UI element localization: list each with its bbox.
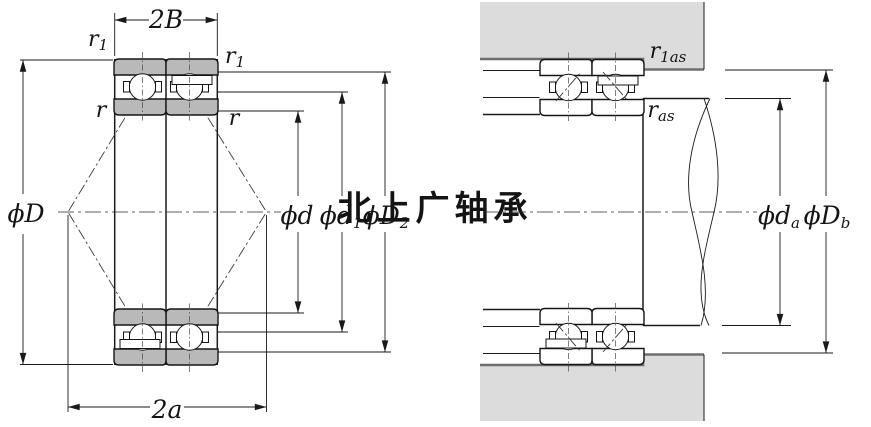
label-r-left: r [96,98,108,123]
label-r-right: r [229,106,241,131]
label-phi-da: ϕda [758,201,800,232]
label-phi-d: ϕd [280,201,313,230]
left-figure-bearing-section: 2B r1 r1 r r ϕD ϕd ϕd1 ϕD2 2a [7,5,409,424]
label-phi-Db: ϕDb [804,201,851,232]
label-2a: 2a [151,395,183,424]
bearing-drawing-canvas: 北上广轴承 [0,0,871,427]
label-phi-D: ϕD [7,199,44,228]
label-r1-left: r1 [88,27,108,54]
label-r1-right: r1 [225,44,245,71]
label-ras: ras [647,98,674,125]
mounted-bearing-top-section [540,53,644,123]
label-2B: 2B [148,5,183,34]
right-figure-mounting-section: r1as ras ϕda ϕDb [480,2,850,421]
mounted-bearing-bottom-section [540,302,644,372]
bearing-dimension-diagram: 北上广轴承 [0,0,871,427]
